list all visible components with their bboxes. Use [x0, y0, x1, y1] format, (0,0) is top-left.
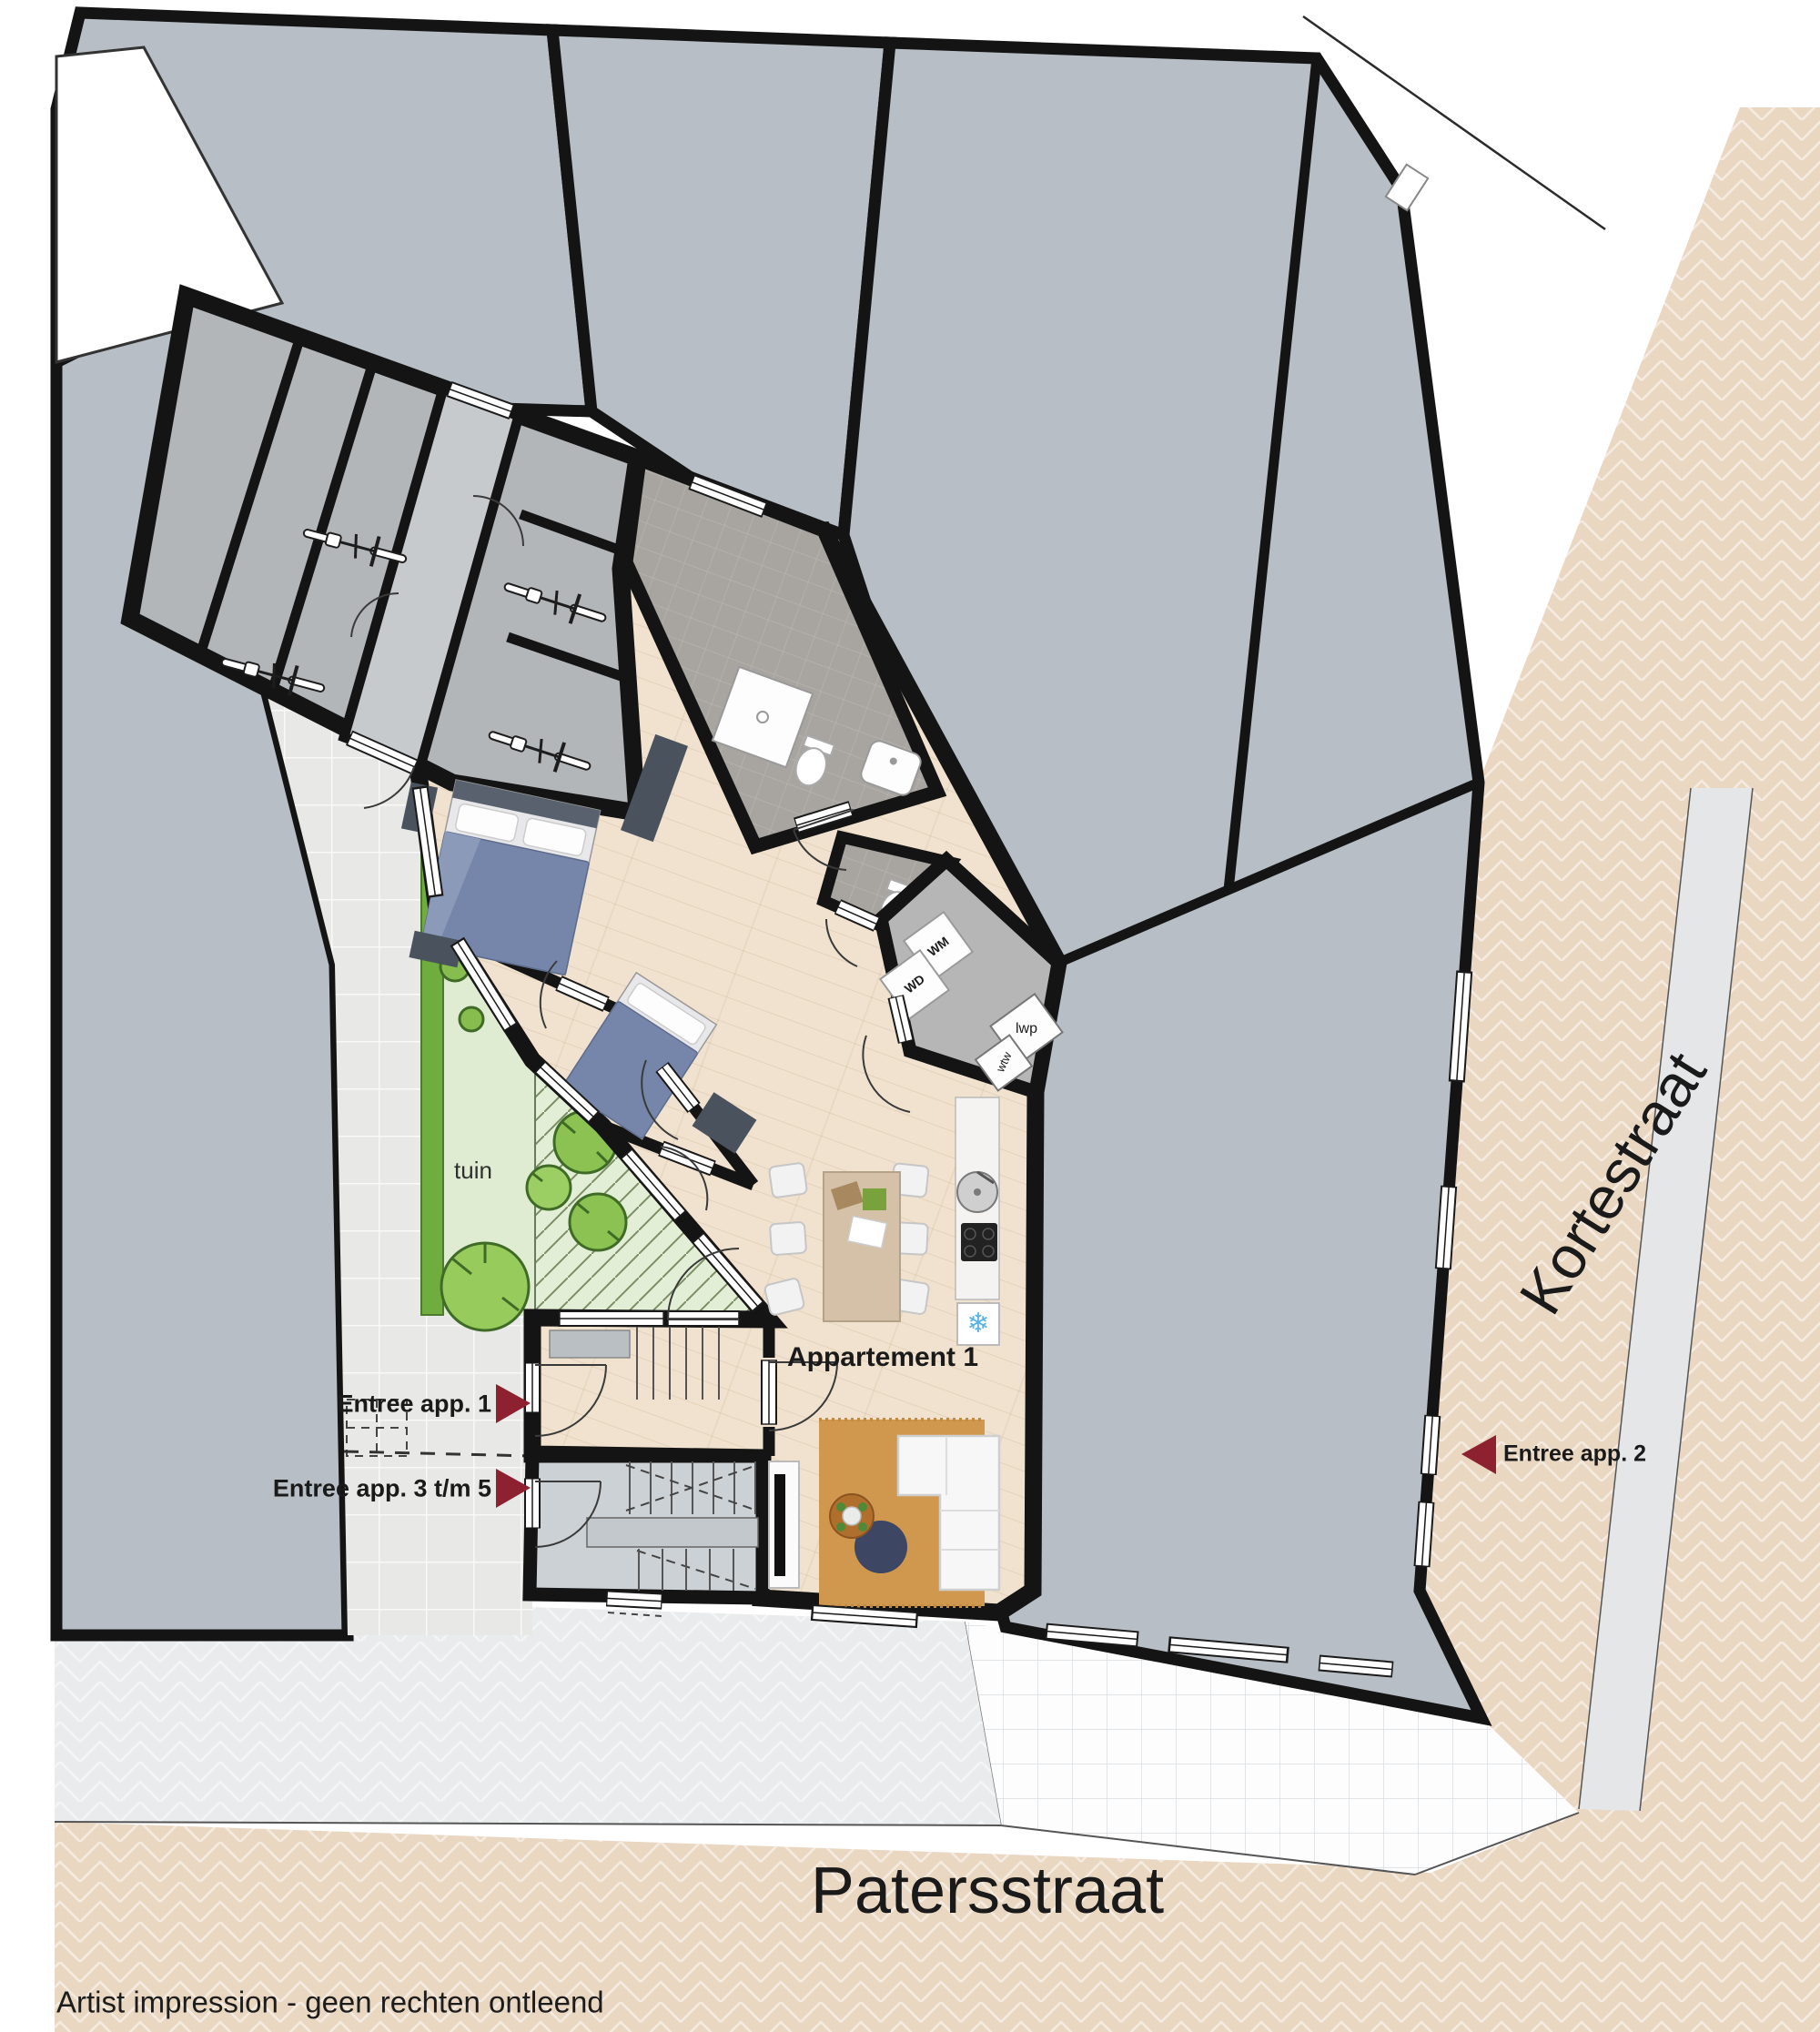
apartment-1-label: Appartement 1: [787, 1344, 978, 1371]
tv-icon: [774, 1474, 785, 1576]
disclaimer-text: Artist impression - geen rechten ontleen…: [56, 1987, 604, 2017]
cooktop-icon: [961, 1223, 997, 1261]
dining-area: [763, 1163, 929, 1321]
street-name-patersstraat: Patersstraat: [811, 1858, 1164, 1924]
entrance-door-app-2: [1421, 1416, 1440, 1475]
garden-label: tuin: [454, 1158, 492, 1182]
floor-plan-page: tuin Appartement 1 Entree app. 1 Entree …: [0, 0, 1820, 2032]
entree-app-1-label: Entree app. 1: [337, 1392, 491, 1417]
freezer-snowflake-icon: ❄: [966, 1310, 989, 1338]
bush-icon: [460, 1007, 483, 1031]
entree-app-3-5-label: Entree app. 3 t/m 5: [273, 1477, 491, 1501]
hall-cabinet: [550, 1330, 630, 1358]
heat-pump-label: lwp: [1016, 1022, 1037, 1036]
communal-stairwell: [530, 1456, 763, 1616]
floor-plan-drawing: [0, 0, 1820, 2032]
entree-app-2-label: Entree app. 2: [1503, 1443, 1646, 1466]
stair-landing: [587, 1518, 758, 1547]
